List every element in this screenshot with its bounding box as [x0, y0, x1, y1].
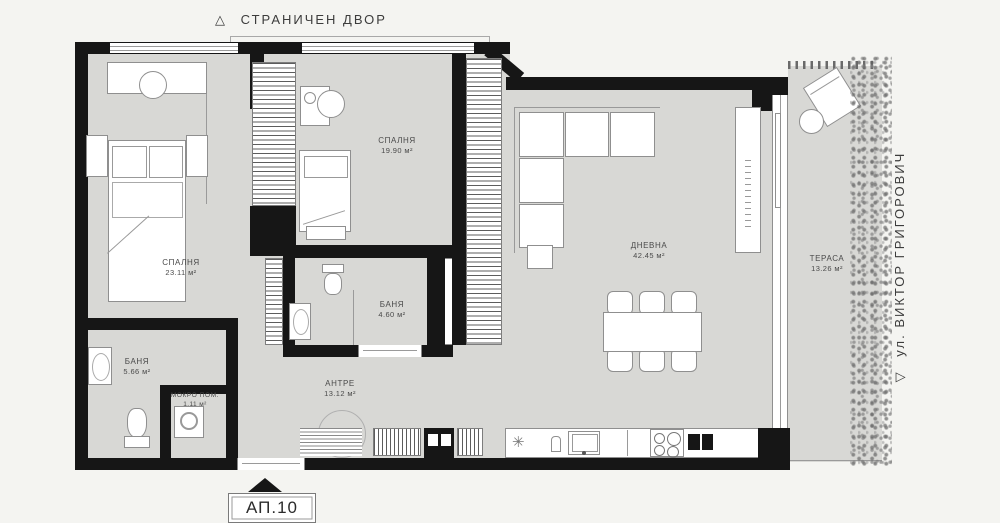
sofa-seat	[519, 112, 564, 157]
chair	[139, 71, 167, 99]
wall-bottom-left	[75, 458, 237, 470]
room-label-bedroom-2: СПАЛНЯ 19.90 м²	[378, 135, 415, 157]
room-label-living: ДНЕВНА 42.45 м²	[631, 240, 668, 262]
sink-drain	[582, 451, 586, 455]
room-name: БАНЯ	[378, 299, 405, 310]
room-area: 42.45 м²	[631, 251, 668, 262]
door-jamb-bedroom-2	[445, 258, 452, 345]
hall-cabinet	[457, 428, 483, 456]
cooktop	[650, 429, 684, 457]
entrance-arrow-icon	[248, 478, 282, 492]
wall-bathroom-2-bottom	[420, 345, 453, 357]
wall-bathroom-1-right	[226, 318, 238, 458]
room-label-terrace: ТЕРАСА 13.26 м²	[810, 253, 845, 275]
kitchen-sink	[568, 431, 600, 455]
room-name: ДНЕВНА	[631, 240, 668, 251]
doormat	[300, 428, 362, 456]
burner	[667, 432, 681, 446]
unit-number: АП.10	[246, 498, 298, 518]
side-yard-caption: △ СТРАНИЧЕН ДВОР	[215, 12, 387, 28]
bathroom-2-door	[358, 345, 422, 357]
appliance-block	[702, 434, 713, 450]
room-area: 19.90 м²	[378, 146, 415, 157]
street-text: ул. ВИКТОР ГРИГОРОВИЧ	[892, 152, 907, 357]
wardrobe-hatch-living	[466, 58, 502, 345]
wall-bottom-right	[303, 458, 790, 470]
washing-machine	[174, 406, 204, 438]
sofa-seat	[519, 204, 564, 248]
room-label-bathroom-2: БАНЯ 4.60 м²	[378, 299, 405, 321]
room-label-bedroom-1: СПАЛНЯ 23.11 м²	[162, 257, 199, 279]
room-name: АНТРЕ	[324, 378, 356, 389]
window-mullion	[474, 42, 478, 54]
burner	[654, 433, 665, 444]
window-bedroom-1	[108, 43, 240, 53]
side-table	[527, 245, 553, 269]
toilet	[127, 408, 147, 438]
window-mullion	[298, 42, 302, 54]
wall-bedroom-2-right	[452, 54, 466, 345]
sofa-seat	[565, 112, 609, 157]
toilet-tank	[124, 436, 150, 448]
shaft-cell	[441, 434, 451, 446]
floor-plan: △ СТРАНИЧЕН ДВОР ▽ ул. ВИКТОР ГРИГОРОВИЧ	[0, 0, 1000, 523]
wall-living-top	[506, 77, 756, 90]
closet-hatch-hallway	[265, 258, 283, 345]
appliance-block	[688, 434, 700, 450]
wall-bathroom-2-bottom	[283, 345, 358, 357]
room-area: 4.60 м²	[378, 310, 405, 321]
basin-bowl	[293, 309, 309, 335]
wall-corner-bottom-right	[758, 428, 790, 470]
room-name: МОКРО ПОМ.	[171, 391, 219, 400]
kitchen-counter	[505, 428, 772, 458]
hall-cabinet	[373, 428, 421, 456]
wall-bathroom-2-top	[283, 245, 453, 258]
duvet-band	[112, 182, 183, 218]
wall-bathroom-2-right	[427, 258, 445, 345]
pillow	[149, 146, 183, 178]
pillow	[304, 156, 348, 178]
room-name: СПАЛНЯ	[378, 135, 415, 146]
chair	[317, 90, 345, 118]
room-label-laundry: МОКРО ПОМ. 1.11 м²	[171, 391, 219, 409]
triangle-up-icon: △	[215, 12, 227, 27]
wall-laundry-left	[160, 385, 171, 458]
wardrobe-hatch-bedroom-2	[252, 62, 296, 206]
triangle-down-icon: ▽	[892, 370, 907, 382]
pillow	[112, 146, 147, 178]
room-name: БАНЯ	[123, 356, 150, 367]
window-mullion	[106, 42, 110, 54]
blanket-fold-line	[303, 210, 345, 225]
toilet-tank	[322, 264, 344, 273]
burner	[667, 446, 679, 458]
nightstand	[186, 135, 208, 177]
wall-left	[75, 42, 88, 470]
entrance-door	[237, 458, 305, 470]
room-area: 5.66 м²	[123, 367, 150, 378]
single-bed	[299, 150, 351, 232]
sofa-seat	[519, 158, 564, 203]
window-bedroom-2	[300, 43, 476, 53]
wall-bathroom-1-top	[88, 318, 238, 330]
sofa-back-line	[514, 107, 660, 108]
nightstand	[86, 135, 108, 177]
desk-lamp	[304, 92, 316, 104]
vent-symbol: ✳	[512, 433, 525, 451]
blanket-fold-line	[107, 216, 149, 254]
room-area: 1.11 м²	[171, 400, 219, 409]
counter-divider	[627, 430, 628, 456]
street-caption: ▽ ул. ВИКТОР ГРИГОРОВИЧ	[892, 117, 918, 417]
sofa-seat	[610, 112, 655, 157]
tv-cabinet-marks	[745, 160, 751, 230]
bed-bench	[306, 226, 346, 240]
room-area: 23.11 м²	[162, 268, 199, 279]
burner	[654, 445, 665, 456]
round-table	[799, 109, 824, 134]
room-label-hallway: АНТРЕ 13.12 м²	[324, 378, 356, 400]
hedge	[850, 56, 892, 466]
unit-number-badge: АП.10	[228, 493, 316, 523]
sofa-back-line	[514, 107, 515, 253]
room-label-bathroom-1: БАНЯ 5.66 м²	[123, 356, 150, 378]
window-mullion	[238, 42, 242, 54]
sliding-door-leaf	[775, 113, 781, 208]
room-name: ТЕРАСА	[810, 253, 845, 264]
basin-bowl	[92, 353, 110, 381]
dining-table	[603, 312, 702, 352]
shower-screen	[353, 290, 354, 345]
side-yard-text: СТРАНИЧЕН ДВОР	[241, 12, 387, 27]
shaft-cell	[428, 434, 438, 446]
glass-wall	[772, 95, 788, 428]
toilet	[324, 273, 342, 295]
room-area: 13.26 м²	[810, 264, 845, 275]
tv-cabinet	[735, 107, 761, 253]
room-area: 13.12 м²	[324, 389, 356, 400]
setback-area	[510, 30, 800, 77]
washer-drum	[180, 412, 198, 430]
room-name: СПАЛНЯ	[162, 257, 199, 268]
sink-bowl	[572, 434, 598, 452]
tap-fixture	[551, 436, 561, 452]
